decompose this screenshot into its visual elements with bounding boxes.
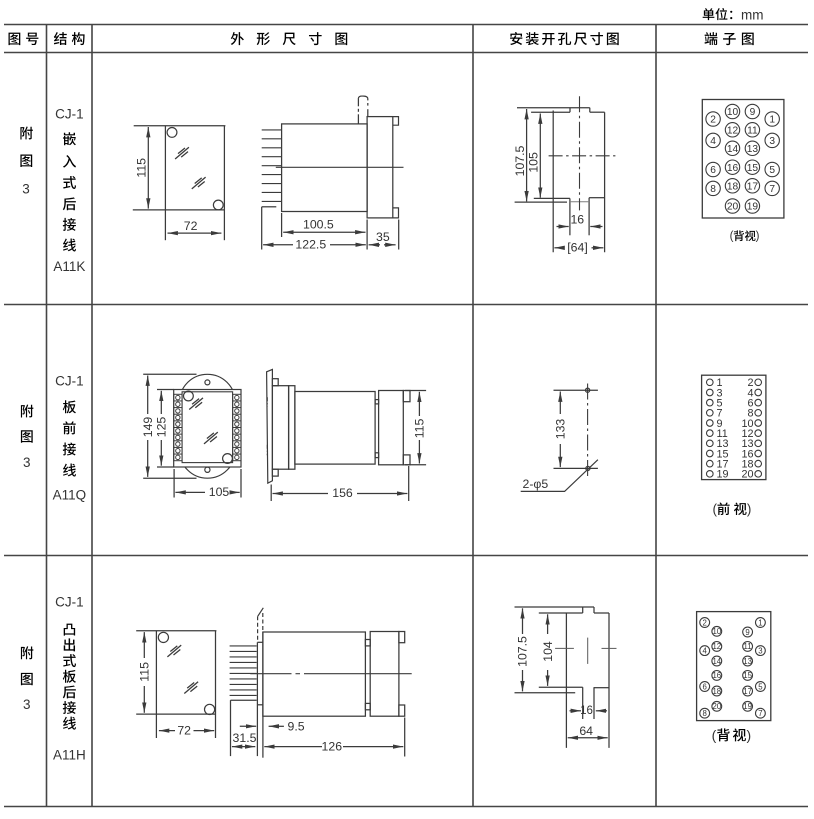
svg-text:7: 7 — [769, 184, 775, 195]
svg-text:12: 12 — [727, 125, 739, 136]
svg-text:16: 16 — [570, 213, 584, 227]
svg-text:149: 149 — [141, 417, 155, 438]
svg-text:19: 19 — [743, 702, 752, 711]
svg-text:(: ( — [712, 727, 717, 743]
svg-text:(: ( — [730, 231, 734, 243]
svg-text:122.5: 122.5 — [295, 238, 326, 252]
svg-text:5: 5 — [769, 165, 775, 176]
svg-text:13: 13 — [743, 657, 752, 666]
svg-text:10: 10 — [727, 107, 739, 118]
svg-text:107.5: 107.5 — [513, 145, 527, 176]
svg-text:8: 8 — [703, 709, 707, 718]
svg-text:13: 13 — [747, 144, 759, 155]
svg-text:18: 18 — [712, 687, 721, 696]
svg-text:12: 12 — [712, 642, 721, 651]
svg-text:15: 15 — [743, 671, 752, 680]
svg-text:9: 9 — [750, 107, 756, 118]
svg-text:7: 7 — [758, 709, 762, 718]
svg-text:4: 4 — [703, 646, 708, 655]
svg-text:107.5: 107.5 — [516, 636, 530, 667]
svg-text:19: 19 — [717, 469, 729, 481]
svg-text:3: 3 — [23, 697, 31, 712]
svg-text:(: ( — [712, 502, 717, 517]
svg-text:105: 105 — [527, 152, 541, 173]
svg-text:6: 6 — [710, 165, 716, 176]
svg-text:3: 3 — [22, 181, 30, 196]
svg-text:1: 1 — [758, 618, 762, 627]
svg-text:2-φ5: 2-φ5 — [523, 477, 549, 491]
svg-text:20: 20 — [712, 702, 721, 711]
svg-text:16: 16 — [580, 705, 593, 717]
svg-text:18: 18 — [727, 181, 739, 192]
svg-text:3: 3 — [769, 136, 775, 147]
svg-text:3: 3 — [23, 455, 31, 470]
svg-text:100.5: 100.5 — [303, 217, 334, 231]
svg-text:156: 156 — [332, 486, 353, 500]
svg-text:CJ-1: CJ-1 — [55, 106, 84, 121]
svg-text:125: 125 — [155, 417, 169, 438]
svg-text:126: 126 — [322, 739, 343, 753]
svg-text:20: 20 — [727, 202, 739, 213]
svg-text:A11H: A11H — [53, 748, 86, 763]
svg-text:3: 3 — [758, 646, 762, 655]
svg-text:): ) — [747, 502, 752, 517]
svg-text:[64]: [64] — [567, 241, 588, 255]
svg-text:35: 35 — [376, 230, 390, 244]
svg-text:115: 115 — [138, 662, 152, 682]
svg-text:): ) — [746, 727, 751, 743]
svg-text:mm: mm — [741, 7, 764, 22]
svg-text:16: 16 — [712, 671, 721, 680]
svg-text:CJ-1: CJ-1 — [55, 595, 84, 610]
svg-text:A11Q: A11Q — [53, 488, 87, 503]
svg-text:133: 133 — [554, 419, 568, 440]
svg-text:14: 14 — [727, 144, 739, 155]
svg-text:15: 15 — [747, 163, 759, 174]
svg-text:72: 72 — [177, 723, 191, 737]
svg-text:1: 1 — [769, 115, 775, 126]
svg-text:10: 10 — [712, 627, 721, 636]
svg-text:6: 6 — [703, 682, 707, 691]
svg-text:5: 5 — [758, 682, 763, 691]
svg-text:17: 17 — [743, 687, 752, 696]
svg-text:64: 64 — [579, 724, 593, 738]
svg-text:115: 115 — [413, 419, 427, 439]
svg-text:2: 2 — [710, 115, 716, 126]
svg-text:105: 105 — [209, 485, 230, 499]
svg-text:72: 72 — [184, 219, 198, 233]
svg-text:): ) — [756, 231, 760, 243]
svg-text:14: 14 — [712, 657, 721, 666]
svg-text:115: 115 — [135, 158, 149, 178]
svg-text:17: 17 — [747, 181, 759, 192]
svg-text:11: 11 — [744, 642, 752, 651]
svg-text:31.5: 31.5 — [233, 731, 257, 745]
svg-text:20: 20 — [741, 469, 753, 481]
svg-text:11: 11 — [747, 125, 758, 136]
svg-text:9.5: 9.5 — [288, 720, 305, 734]
svg-text:4: 4 — [710, 136, 716, 147]
svg-text:2: 2 — [703, 618, 707, 627]
svg-text:9: 9 — [745, 628, 749, 637]
svg-text:CJ-1: CJ-1 — [55, 373, 84, 388]
svg-text:A11K: A11K — [53, 259, 85, 274]
svg-text:8: 8 — [710, 184, 716, 195]
svg-text:104: 104 — [541, 641, 555, 662]
svg-text:19: 19 — [747, 202, 759, 213]
svg-text:16: 16 — [727, 163, 739, 174]
